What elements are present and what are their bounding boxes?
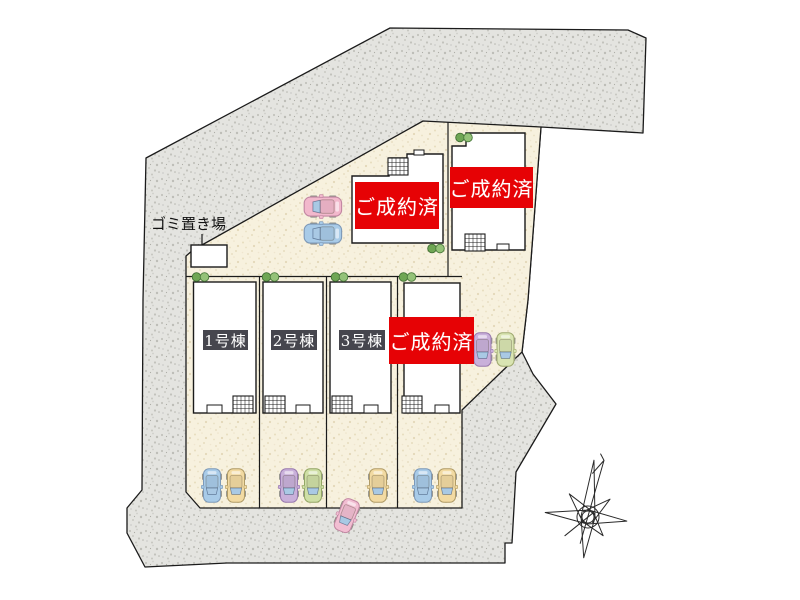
- balcony-grid: [332, 396, 352, 413]
- sold-badge-building-a: ご成約済: [355, 182, 439, 229]
- balcony-grid: [265, 396, 285, 413]
- site-plan: ゴミ置き場 ご成約済 ご成約済 ご成約済 1号棟 2号棟 3号棟: [0, 0, 800, 600]
- car-icon-purple: [278, 469, 299, 502]
- sold-badge-building-b: ご成約済: [450, 167, 533, 208]
- garbage-area-label: ゴミ置き場: [151, 213, 225, 233]
- car-icon-blue: [201, 469, 222, 502]
- car-icon-green: [302, 469, 323, 502]
- balcony-grid: [402, 396, 422, 413]
- car-icon-yellow: [225, 469, 246, 502]
- site-plan-drawing: [0, 0, 800, 600]
- car-icon-purple: [472, 333, 493, 366]
- house-number-label-3: 3号棟: [339, 330, 385, 350]
- car-icon-yellow: [367, 469, 388, 502]
- car-icon-pink-horizontal: [304, 195, 341, 219]
- house-number-label-2: 2号棟: [271, 330, 317, 350]
- car-icon-yellow: [436, 469, 457, 502]
- balcony-grid: [233, 396, 253, 413]
- car-icon-lightgreen: [495, 333, 516, 366]
- house-number-label-1: 1号棟: [203, 330, 248, 350]
- balcony-grid: [465, 234, 485, 251]
- balcony-grid: [388, 158, 408, 175]
- sold-badge-house-4: ご成約済: [389, 317, 474, 364]
- car-icon-blue-horizontal: [304, 222, 341, 246]
- car-icon-blue: [412, 469, 433, 502]
- compass-icon: [541, 449, 634, 562]
